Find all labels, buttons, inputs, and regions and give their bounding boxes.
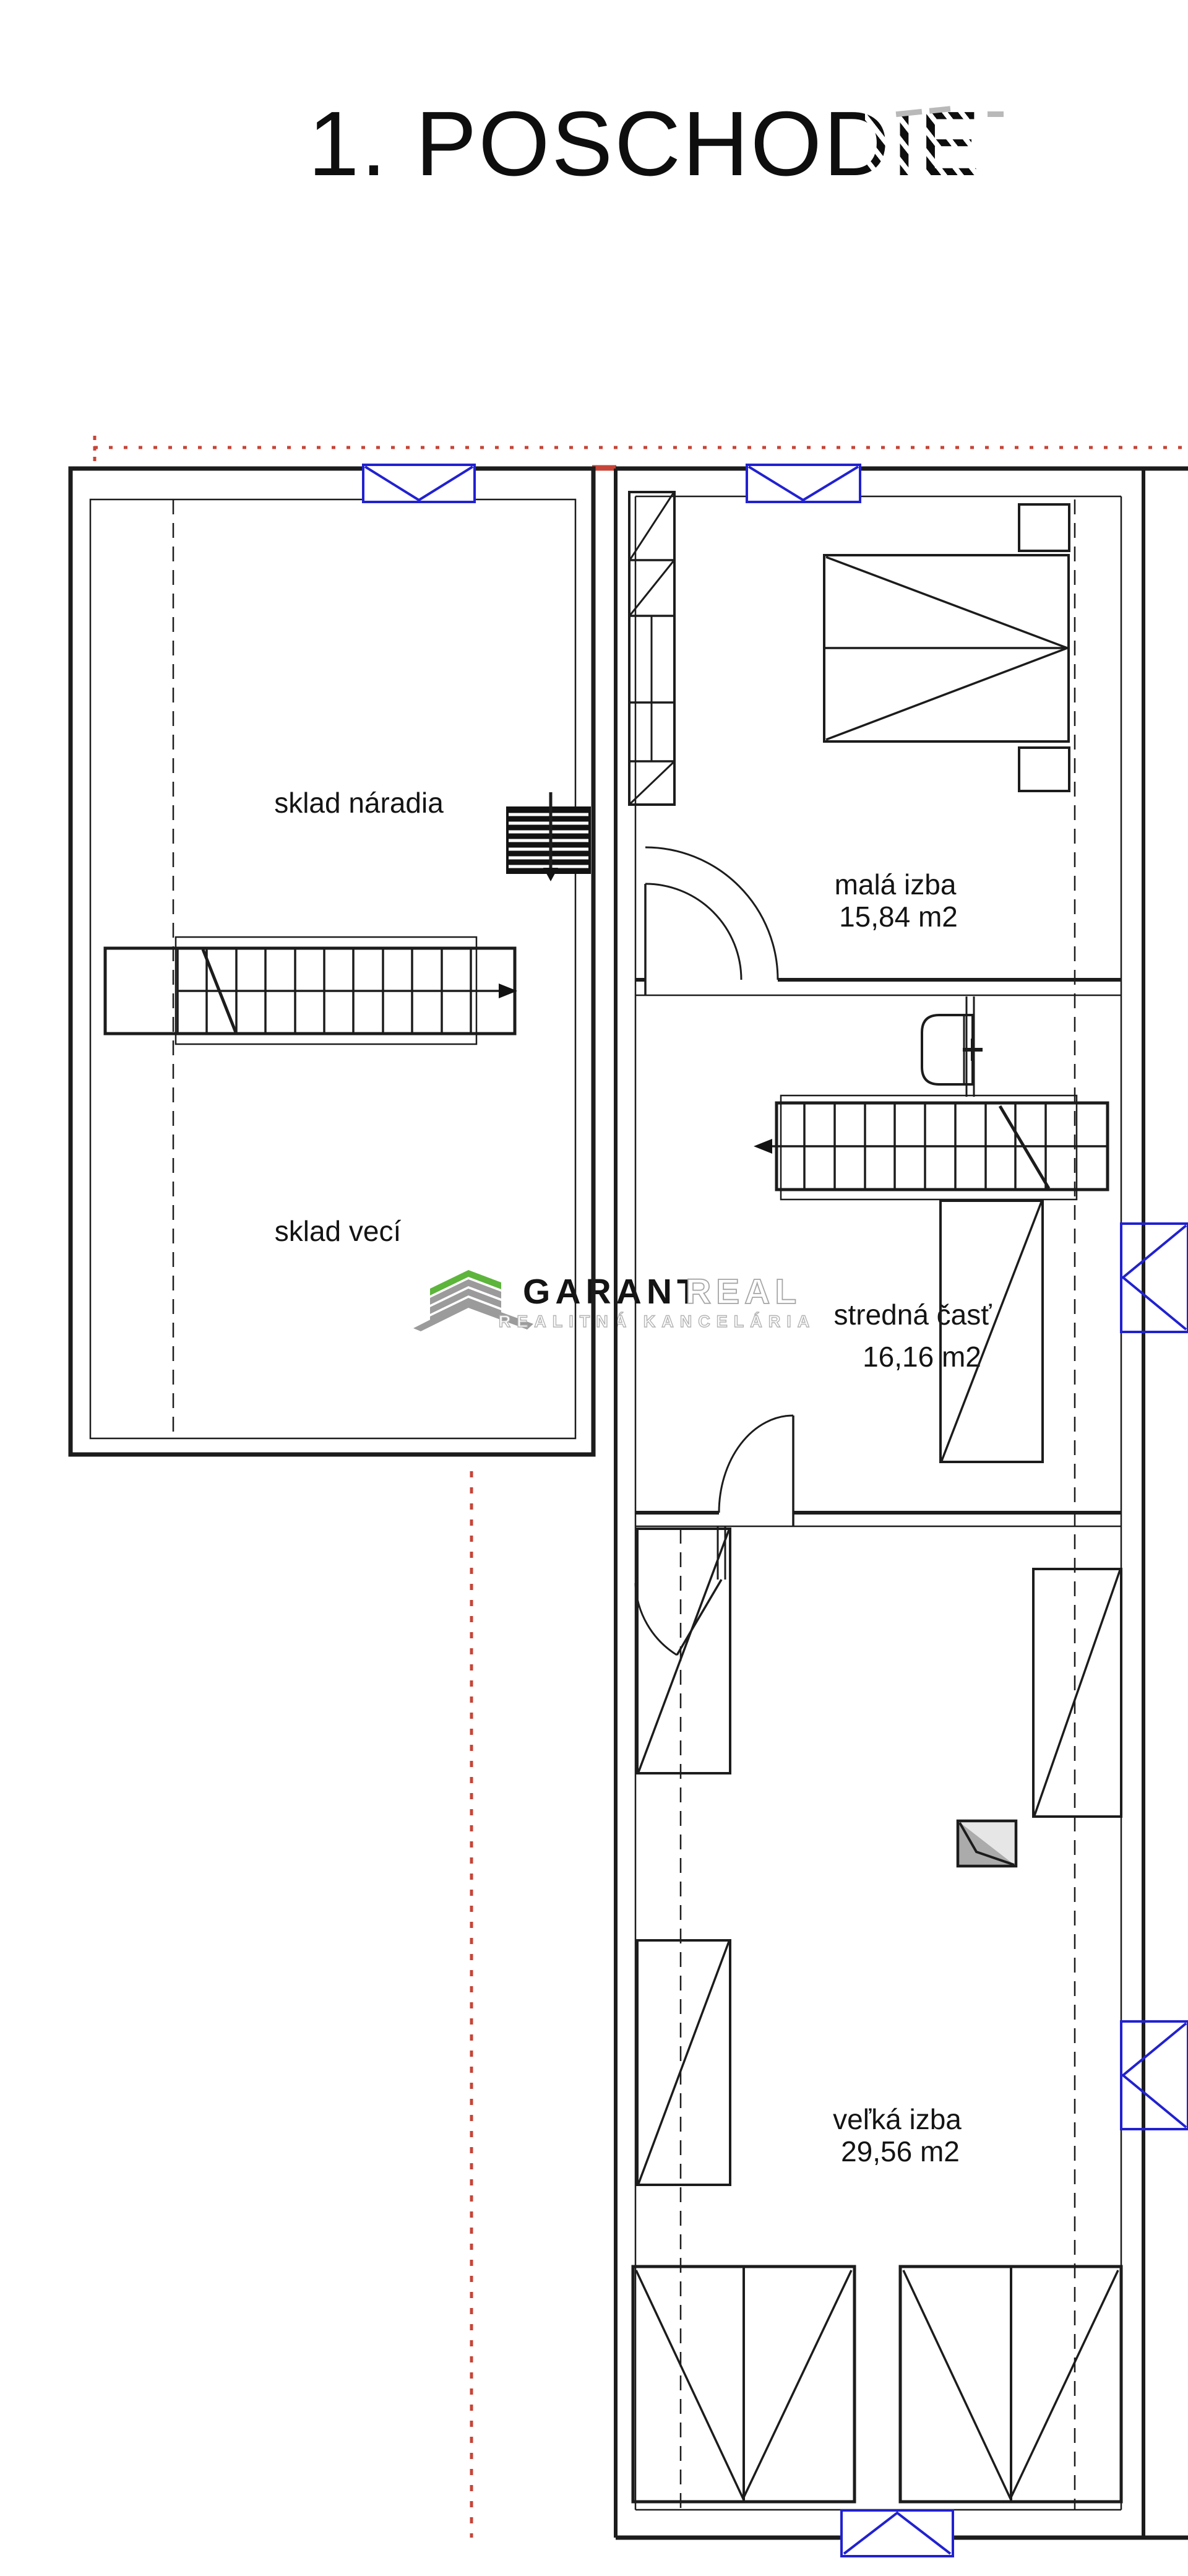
wardrobe	[1033, 1569, 1121, 1817]
stairs-icon	[105, 937, 517, 1044]
nightstand	[1019, 748, 1069, 791]
room-label-stredna-cast: stredná časť	[833, 1299, 992, 1331]
right-building-inner-wall	[635, 496, 1121, 2510]
wardrobe	[940, 1201, 1043, 1462]
watermark-brand-primary: GARANT	[523, 1272, 704, 1312]
room-area-velka-izba: 29,56 m2	[841, 2135, 960, 2168]
radiator-icon	[506, 792, 591, 881]
room-labels: sklad náradia sklad vecí malá izba 15,84…	[274, 787, 992, 2168]
left-building-inner-wall	[90, 499, 575, 1438]
stairs-icon	[754, 1096, 1108, 1199]
watermark-subtitle: REALITNÁ KANCELÁRIA	[499, 1312, 816, 1331]
room-label-sklad-naradia: sklad náradia	[274, 787, 444, 819]
door-swing-icon	[635, 1580, 721, 1655]
bed-double	[900, 2267, 1121, 2502]
room-area-stredna-cast: 16,16 m2	[863, 1341, 981, 1373]
arrow-left-icon	[754, 1139, 772, 1154]
room-label-sklad-veci: sklad vecí	[275, 1215, 402, 1247]
window-icon	[1121, 1224, 1188, 1332]
nightstand	[1019, 504, 1069, 551]
window-icon	[1121, 2021, 1188, 2129]
stairwell-outline	[781, 1096, 1077, 1199]
right-building	[616, 465, 1188, 2556]
floor-plan-drawing: GARANT REAL REALITNÁ KANCELÁRIA sklad ná…	[0, 0, 1188, 2576]
wardrobe	[637, 1529, 730, 1773]
bed-double	[633, 2267, 854, 2502]
tv-icon	[958, 1821, 1016, 1866]
bed-mala-izba	[824, 555, 1069, 741]
door-swing-icon	[719, 1416, 793, 1526]
window-icon	[747, 465, 860, 502]
floor-plan-page: 1. POSCHODIE GARANT REAL REALITNÁ KANCEL…	[0, 0, 1188, 2576]
left-building	[71, 465, 593, 1454]
wardrobe	[637, 1940, 730, 2185]
red-guide-lines	[94, 436, 1188, 2538]
door-swing-icon	[645, 847, 778, 995]
arrow-down-icon	[543, 868, 558, 881]
window-icon	[363, 465, 475, 502]
watermark-brand-secondary: REAL	[686, 1272, 801, 1312]
room-label-mala-izba: malá izba	[835, 868, 957, 901]
boiler-icon	[922, 1015, 983, 1084]
room-area-mala-izba: 15,84 m2	[839, 901, 958, 933]
room-label-velka-izba: veľká izba	[833, 2103, 962, 2135]
window-icon	[841, 2510, 953, 2556]
